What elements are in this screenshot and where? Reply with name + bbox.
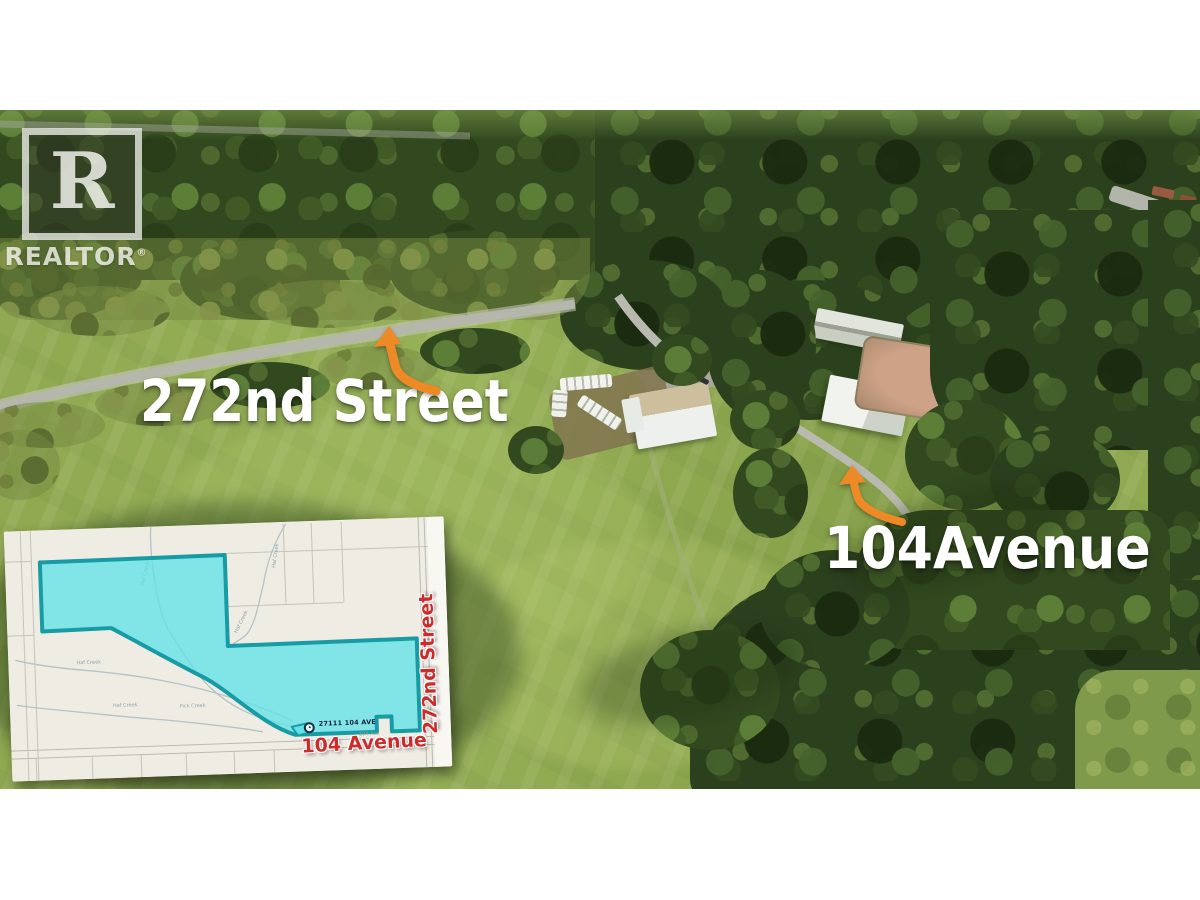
arrow-to-272nd-icon [374, 326, 436, 391]
aerial-photo: Haf Creek Haf Creek Haf Creek Haf Creek … [0, 110, 1200, 789]
arrows-layer [0, 110, 1200, 789]
arrow-to-104ave-icon [839, 465, 902, 522]
listing-image: Haf Creek Haf Creek Haf Creek Haf Creek … [0, 0, 1200, 900]
